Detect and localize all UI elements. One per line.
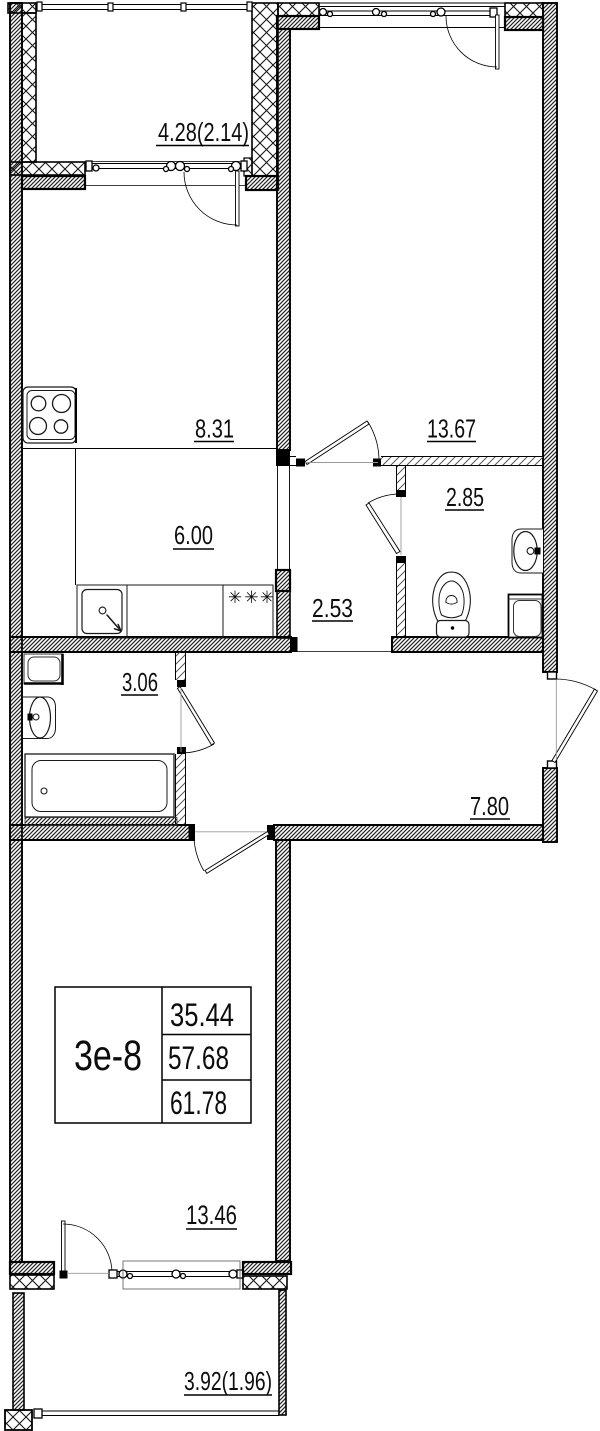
svg-text:2.85: 2.85	[446, 482, 484, 512]
svg-text:3.92(1.96): 3.92(1.96)	[184, 1366, 272, 1396]
svg-text:8.31: 8.31	[195, 414, 234, 444]
svg-text:7.80: 7.80	[470, 791, 509, 821]
svg-text:4.28(2.14): 4.28(2.14)	[158, 117, 249, 147]
svg-text:3е-8: 3е-8	[74, 1032, 142, 1080]
svg-text:57.68: 57.68	[168, 1040, 229, 1076]
svg-text:✳: ✳	[244, 588, 258, 607]
svg-text:3.06: 3.06	[122, 667, 158, 697]
svg-text:✳: ✳	[260, 588, 274, 607]
svg-text:13.67: 13.67	[427, 414, 476, 444]
svg-text:13.46: 13.46	[186, 1200, 237, 1230]
svg-text:2.53: 2.53	[312, 593, 353, 623]
svg-text:61.78: 61.78	[170, 1085, 227, 1121]
svg-text:✳: ✳	[228, 588, 242, 607]
svg-text:6.00: 6.00	[174, 520, 213, 550]
svg-text:35.44: 35.44	[170, 997, 234, 1033]
